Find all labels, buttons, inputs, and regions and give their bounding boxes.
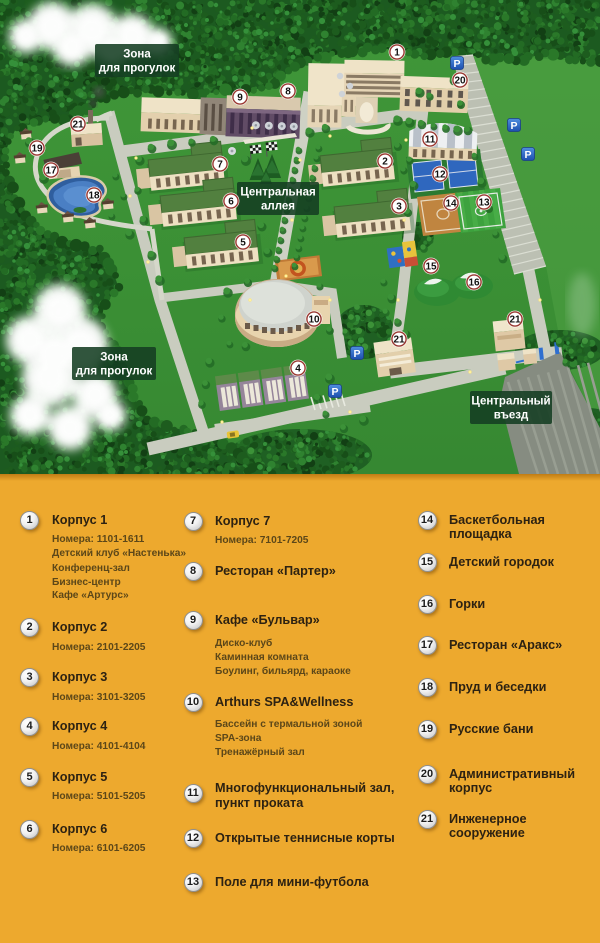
svg-text:Зона: Зона — [123, 49, 151, 61]
svg-text:для прогулок: для прогулок — [99, 63, 176, 75]
svg-text:15: 15 — [425, 262, 437, 273]
svg-text:7: 7 — [217, 160, 223, 171]
svg-text:18: 18 — [88, 191, 100, 202]
svg-text:8: 8 — [285, 87, 291, 98]
svg-text:P: P — [331, 386, 338, 398]
svg-text:1: 1 — [394, 48, 400, 59]
svg-text:21: 21 — [72, 120, 84, 131]
svg-text:Центральная: Центральная — [240, 187, 315, 199]
svg-text:аллея: аллея — [261, 201, 295, 213]
svg-text:въезд: въезд — [494, 410, 529, 422]
svg-text:P: P — [353, 348, 360, 360]
svg-text:6: 6 — [228, 197, 234, 208]
svg-text:14: 14 — [445, 199, 457, 210]
svg-text:3: 3 — [396, 202, 402, 213]
svg-text:21: 21 — [509, 315, 521, 326]
svg-text:12: 12 — [434, 170, 446, 181]
svg-text:P: P — [510, 120, 517, 132]
svg-text:10: 10 — [308, 315, 320, 326]
svg-text:P: P — [453, 58, 460, 70]
svg-text:20: 20 — [454, 76, 466, 87]
svg-text:16: 16 — [468, 278, 480, 289]
svg-text:5: 5 — [240, 238, 246, 249]
svg-text:для прогулок: для прогулок — [76, 366, 153, 378]
svg-text:21: 21 — [393, 335, 405, 346]
svg-text:9: 9 — [237, 93, 243, 104]
svg-text:P: P — [524, 149, 531, 161]
svg-text:Зона: Зона — [100, 352, 128, 364]
svg-text:11: 11 — [425, 135, 436, 146]
svg-text:2: 2 — [382, 157, 388, 168]
svg-text:Центральный: Центральный — [471, 396, 550, 408]
svg-text:17: 17 — [45, 166, 57, 177]
svg-text:13: 13 — [478, 198, 490, 209]
svg-text:19: 19 — [31, 144, 43, 155]
svg-text:4: 4 — [295, 364, 301, 375]
